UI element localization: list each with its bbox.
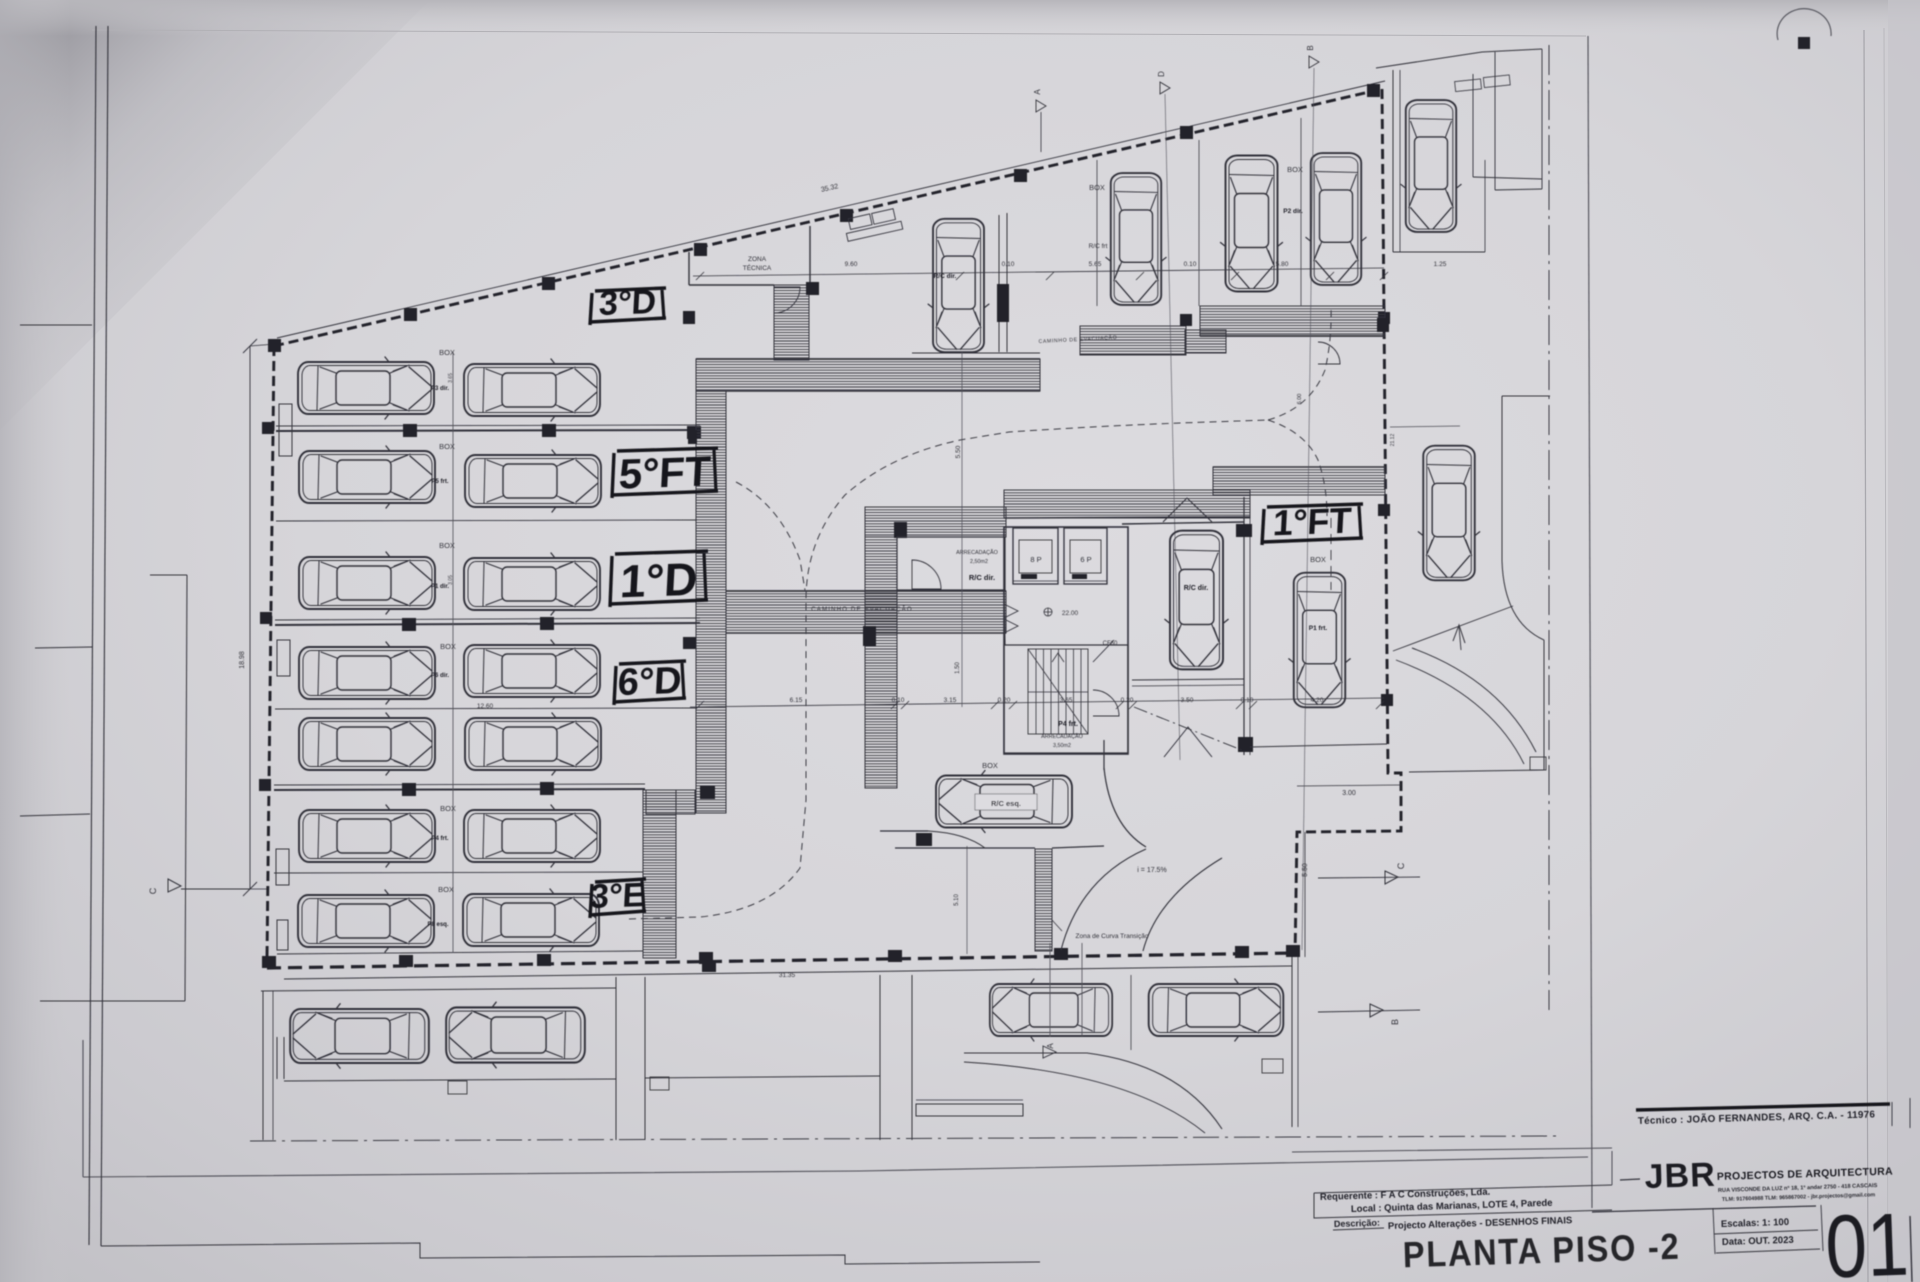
svg-text:P8 esq.: P8 esq. bbox=[427, 922, 448, 928]
svg-text:R/C dir.: R/C dir. bbox=[969, 573, 995, 582]
svg-text:0.10: 0.10 bbox=[892, 697, 905, 704]
svg-text:BOX: BOX bbox=[440, 642, 456, 651]
svg-text:D: D bbox=[1157, 71, 1166, 77]
svg-text:0.10: 0.10 bbox=[1002, 261, 1015, 268]
svg-text:Zona de Curva Transição: Zona de Curva Transição bbox=[1076, 933, 1149, 940]
svg-text:BOX: BOX bbox=[439, 442, 455, 451]
svg-text:Descrição:: Descrição: bbox=[1334, 1218, 1380, 1229]
svg-text:BOX: BOX bbox=[438, 885, 454, 894]
svg-text:R/C dir.: R/C dir. bbox=[934, 273, 957, 280]
svg-text:3°E: 3°E bbox=[589, 876, 646, 916]
svg-text:3.65: 3.65 bbox=[448, 373, 454, 383]
svg-text:5.10: 5.10 bbox=[954, 894, 960, 906]
svg-text:CF60: CF60 bbox=[1103, 641, 1118, 647]
svg-text:A: A bbox=[1033, 89, 1042, 95]
svg-text:BOX: BOX bbox=[439, 348, 455, 357]
svg-text:P4 frt.: P4 frt. bbox=[431, 836, 448, 842]
svg-text:3.00: 3.00 bbox=[1342, 790, 1356, 797]
svg-text:21.12: 21.12 bbox=[1390, 434, 1396, 447]
svg-text:22.00: 22.00 bbox=[1062, 610, 1079, 617]
svg-text:BOX: BOX bbox=[1310, 555, 1326, 564]
svg-text:R/C dir.: R/C dir. bbox=[1184, 585, 1209, 592]
svg-text:1.25: 1.25 bbox=[1434, 261, 1447, 268]
svg-text:BOX: BOX bbox=[1287, 165, 1303, 174]
svg-text:P2 dir.: P2 dir. bbox=[1283, 208, 1303, 215]
svg-text:P1 dir.: P1 dir. bbox=[431, 584, 449, 590]
svg-text:B: B bbox=[1390, 1019, 1400, 1025]
svg-text:0.10: 0.10 bbox=[1184, 261, 1197, 268]
svg-text:CAMINHO DE EVACUAÇÃO: CAMINHO DE EVACUAÇÃO bbox=[811, 606, 913, 613]
svg-text:ARRECADAÇÃO: ARRECADAÇÃO bbox=[956, 549, 998, 556]
svg-text:BOX: BOX bbox=[1089, 183, 1105, 192]
svg-text:ZONA: ZONA bbox=[748, 256, 767, 263]
svg-text:C: C bbox=[1396, 862, 1406, 869]
svg-text:6°D: 6°D bbox=[617, 660, 683, 704]
svg-text:ARRECADAÇÃO: ARRECADAÇÃO bbox=[1041, 733, 1083, 740]
svg-text:31.35: 31.35 bbox=[779, 972, 796, 979]
svg-text:Data: OUT. 2023: Data: OUT. 2023 bbox=[1722, 1235, 1794, 1248]
svg-text:6.15: 6.15 bbox=[790, 697, 803, 704]
svg-text:C: C bbox=[148, 887, 158, 894]
svg-text:P4 frt.: P4 frt. bbox=[1058, 721, 1078, 728]
svg-text:1°D: 1°D bbox=[619, 553, 699, 608]
svg-text:1.50: 1.50 bbox=[955, 662, 961, 674]
svg-text:0.10: 0.10 bbox=[1241, 697, 1254, 704]
svg-text:0.20: 0.20 bbox=[1121, 697, 1134, 704]
svg-text:12.60: 12.60 bbox=[477, 703, 494, 710]
svg-text:2,50m2: 2,50m2 bbox=[970, 559, 988, 565]
svg-text:BOX: BOX bbox=[439, 541, 455, 550]
svg-text:BOX: BOX bbox=[440, 804, 456, 813]
svg-text:3.50: 3.50 bbox=[1181, 697, 1194, 704]
svg-text:5.50: 5.50 bbox=[955, 445, 962, 458]
svg-text:JBR: JBR bbox=[1644, 1156, 1716, 1196]
svg-text:6 P: 6 P bbox=[1080, 555, 1091, 564]
svg-text:3°D: 3°D bbox=[598, 283, 657, 323]
svg-text:0.20: 0.20 bbox=[998, 697, 1011, 704]
svg-text:P6 dir.: P6 dir. bbox=[431, 673, 449, 679]
svg-text:P3 dir.: P3 dir. bbox=[431, 386, 449, 392]
svg-text:BOX: BOX bbox=[982, 761, 998, 770]
svg-text:8 P: 8 P bbox=[1030, 555, 1041, 564]
svg-text:Escalas: 1: 100: Escalas: 1: 100 bbox=[1721, 1217, 1789, 1230]
svg-text:3.15: 3.15 bbox=[944, 697, 957, 704]
svg-text:TÉCNICA: TÉCNICA bbox=[743, 263, 772, 272]
svg-text:3.05: 3.05 bbox=[448, 575, 454, 585]
svg-text:P1 frt.: P1 frt. bbox=[1309, 625, 1328, 632]
svg-text:5.65: 5.65 bbox=[1089, 261, 1102, 268]
svg-text:9.60: 9.60 bbox=[845, 261, 858, 268]
svg-text:B: B bbox=[1306, 45, 1315, 50]
svg-text:3.65: 3.65 bbox=[1060, 697, 1073, 704]
svg-text:3,50m2: 3,50m2 bbox=[1053, 743, 1071, 749]
svg-text:R/C esq.: R/C esq. bbox=[991, 799, 1021, 808]
svg-text:R/C frt: R/C frt bbox=[1089, 243, 1108, 250]
svg-text:P5 frt.: P5 frt. bbox=[431, 479, 448, 485]
svg-text:1°FT: 1°FT bbox=[1272, 500, 1352, 544]
svg-text:01: 01 bbox=[1824, 1196, 1911, 1282]
svg-text:18.98: 18.98 bbox=[239, 651, 246, 669]
svg-text:i = 17.5%: i = 17.5% bbox=[1137, 867, 1166, 874]
svg-text:5°FT: 5°FT bbox=[618, 447, 712, 497]
